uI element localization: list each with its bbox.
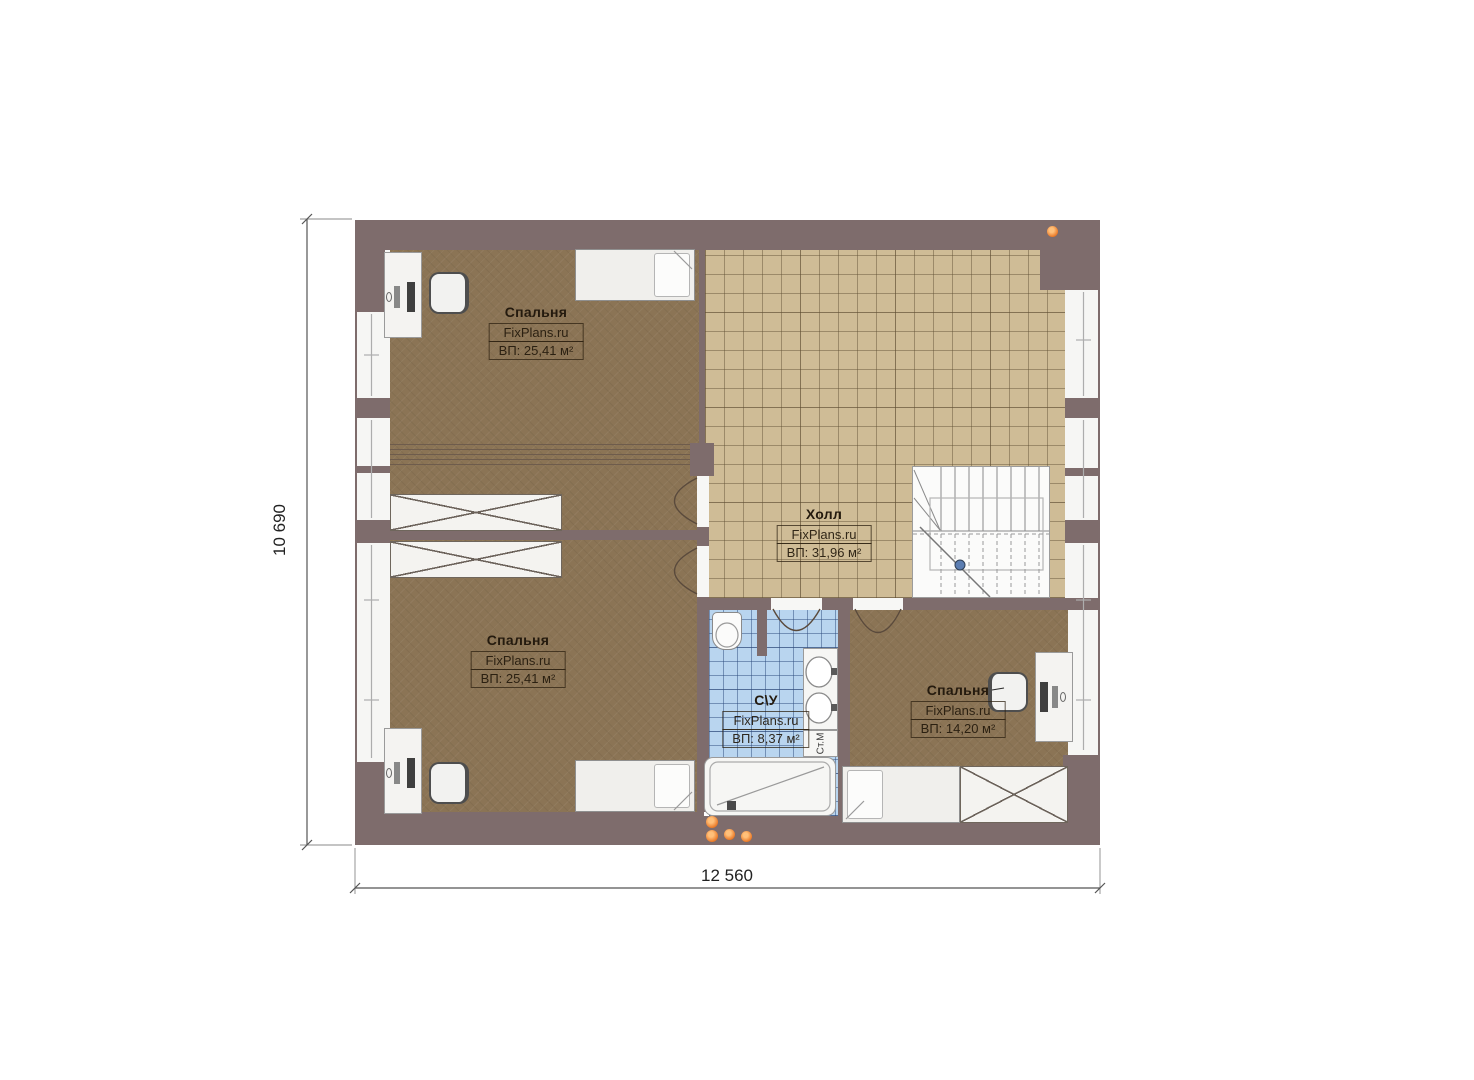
wall-segment-right-3 bbox=[1065, 520, 1100, 543]
watermark-text: FixPlans.ru bbox=[722, 711, 809, 730]
watermark-box: FixPlans.ru ВП: 8,37 м² bbox=[722, 711, 809, 748]
room-name: Спальня bbox=[487, 632, 550, 648]
wall-between-left-bedrooms bbox=[390, 530, 699, 540]
dimension-width: 12 560 bbox=[701, 866, 753, 886]
pillow bbox=[847, 770, 883, 819]
wall-segment-left-3 bbox=[355, 520, 390, 543]
toilet bbox=[712, 612, 742, 650]
wall-hall-bath-2 bbox=[822, 598, 853, 610]
door-opening-bedroom-bottom bbox=[697, 546, 709, 597]
room-label-bedroom-right: Спальня FixPlans.ru ВП: 14,20 м² bbox=[911, 682, 1006, 738]
sliding-partition-track bbox=[390, 444, 690, 465]
wall-top bbox=[355, 220, 1100, 250]
room-area: ВП: 31,96 м² bbox=[777, 543, 872, 562]
wall-segment-right-1 bbox=[1065, 398, 1100, 418]
wardrobe-bottom bbox=[390, 541, 562, 578]
staircase bbox=[912, 466, 1050, 598]
room-label-bedroom-bottom-left: Спальня FixPlans.ru ВП: 25,41 м² bbox=[471, 632, 566, 688]
wall-toilet-stub bbox=[757, 610, 767, 656]
watermark-box: FixPlans.ru ВП: 25,41 м² bbox=[471, 651, 566, 688]
floor-plan-page: Ст.М bbox=[0, 0, 1474, 1080]
wall-segment-left-2 bbox=[355, 466, 390, 473]
door-opening-bathroom bbox=[771, 598, 822, 610]
bathtub bbox=[704, 757, 836, 816]
room-name: Холл bbox=[806, 506, 842, 522]
room-area: ВП: 25,41 м² bbox=[471, 669, 566, 688]
pillow bbox=[654, 253, 690, 297]
watermark-box: FixPlans.ru ВП: 14,20 м² bbox=[911, 701, 1006, 738]
door-opening-bedroom-top bbox=[697, 476, 709, 527]
wall-hall-bedroom-right bbox=[903, 598, 1100, 610]
washing-machine-label: Ст.М bbox=[815, 733, 826, 755]
chair-bedroom-bottom-left bbox=[429, 762, 469, 804]
dimension-height: 10 690 bbox=[270, 504, 290, 556]
desk-bedroom-bottom-left bbox=[384, 728, 422, 814]
marker-dot-bath-3 bbox=[724, 829, 735, 840]
room-label-hall: Холл FixPlans.ru ВП: 31,96 м² bbox=[777, 506, 872, 562]
wall-corner-bottom-right bbox=[1063, 755, 1100, 845]
room-name: Спальня bbox=[505, 304, 568, 320]
bed-bedroom-top-left bbox=[575, 249, 695, 301]
pillow bbox=[654, 764, 690, 808]
bed-bedroom-right bbox=[842, 766, 960, 823]
watermark-box: FixPlans.ru ВП: 31,96 м² bbox=[777, 525, 872, 562]
bed-bedroom-bottom-left bbox=[575, 760, 695, 812]
wardrobe-bedroom-right bbox=[960, 766, 1068, 823]
wall-junction-block bbox=[690, 443, 714, 476]
wall-corner-bottom-left bbox=[355, 762, 385, 845]
marker-dot-bath-4 bbox=[741, 831, 752, 842]
desk-bedroom-top-left bbox=[384, 252, 422, 338]
room-area: ВП: 25,41 м² bbox=[489, 341, 584, 360]
chair-bedroom-top-left bbox=[429, 272, 469, 314]
watermark-text: FixPlans.ru bbox=[471, 651, 566, 670]
wall-hall-bath-1 bbox=[709, 598, 771, 610]
room-label-bedroom-top-left: Спальня FixPlans.ru ВП: 25,41 м² bbox=[489, 304, 584, 360]
room-name: С\У bbox=[754, 692, 778, 708]
wardrobe-top bbox=[390, 494, 562, 531]
watermark-text: FixPlans.ru bbox=[911, 701, 1006, 720]
marker-dot-bath-1 bbox=[706, 816, 718, 828]
watermark-box: FixPlans.ru ВП: 25,41 м² bbox=[489, 323, 584, 360]
room-area: ВП: 14,20 м² bbox=[911, 719, 1006, 738]
room-label-bathroom: С\У FixPlans.ru ВП: 8,37 м² bbox=[722, 692, 809, 748]
marker-dot-corner bbox=[1047, 226, 1058, 237]
wall-bedroom-hall bbox=[699, 250, 705, 443]
room-area: ВП: 8,37 м² bbox=[722, 729, 809, 748]
desk-bedroom-right bbox=[1035, 652, 1073, 742]
watermark-text: FixPlans.ru bbox=[489, 323, 584, 342]
marker-dot-bath-2 bbox=[706, 830, 718, 842]
wall-corner-top-left bbox=[355, 220, 385, 312]
room-name: Спальня bbox=[927, 682, 990, 698]
wall-segment-right-2 bbox=[1065, 468, 1100, 476]
door-opening-bedroom-right bbox=[853, 598, 903, 610]
watermark-text: FixPlans.ru bbox=[777, 525, 872, 544]
wall-bottom-left bbox=[355, 812, 704, 845]
wall-segment-left-1 bbox=[355, 398, 390, 418]
